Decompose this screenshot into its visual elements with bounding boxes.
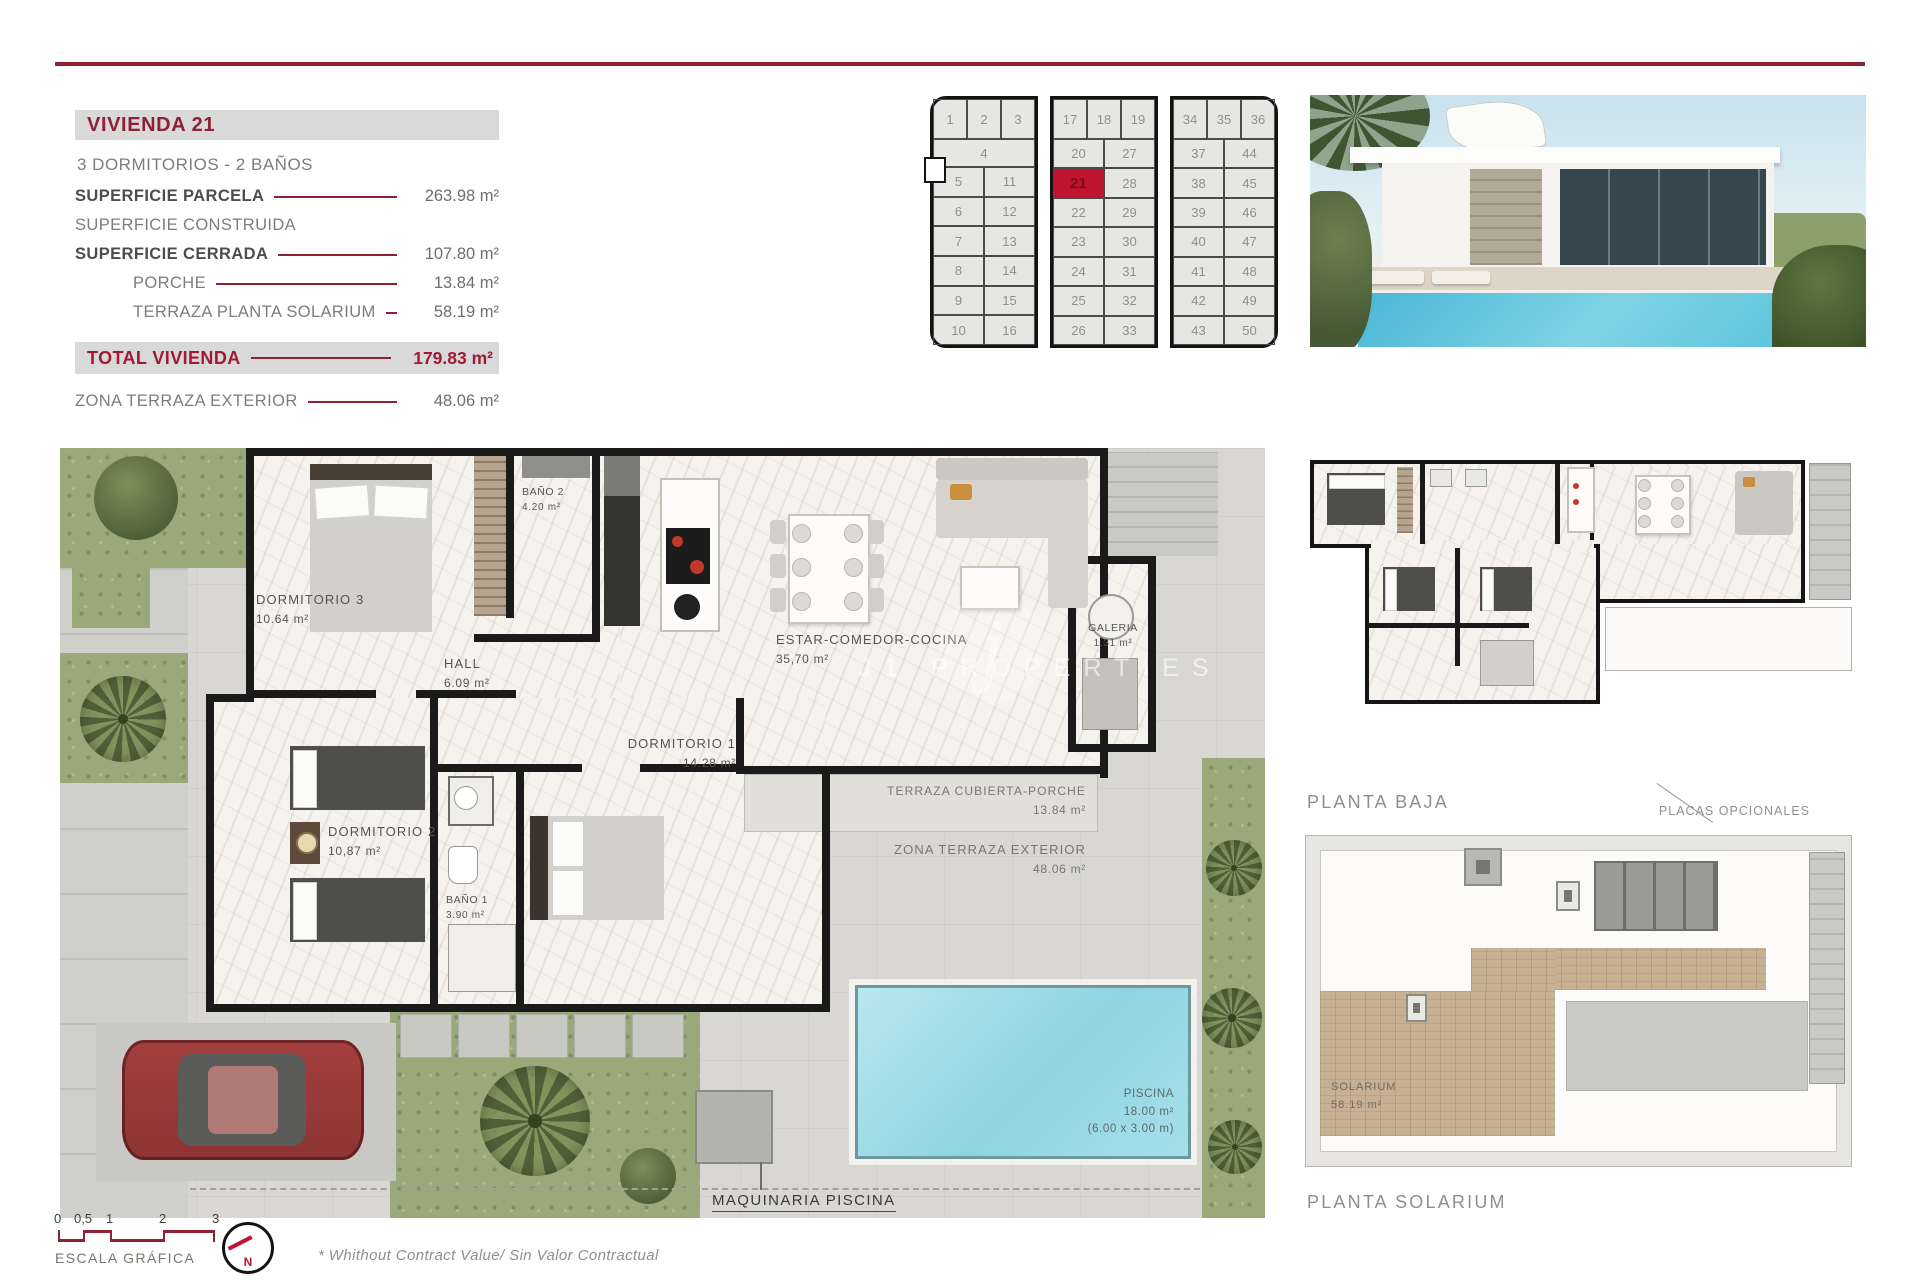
plot-cell-35: 35 xyxy=(1207,99,1241,139)
bush-icon xyxy=(1310,191,1372,347)
pillow xyxy=(1329,475,1385,489)
scale-tick: 0,5 xyxy=(74,1211,92,1226)
plate xyxy=(844,524,863,543)
plot-cell-45: 45 xyxy=(1224,168,1275,197)
plate xyxy=(844,592,863,611)
row-label: SUPERFICIE CERRADA xyxy=(75,245,268,264)
pillow xyxy=(1482,569,1494,611)
bed-icon xyxy=(1480,640,1534,686)
sun-lounger-icon xyxy=(1432,271,1490,284)
room-label-bano-2: BAÑO 2 4.20 m² xyxy=(522,484,564,516)
surface-row-construida: SUPERFICIE CONSTRUIDA xyxy=(75,212,499,239)
plot-row: 814 xyxy=(933,256,1035,286)
plot-row: 2431 xyxy=(1053,257,1155,286)
north-needle xyxy=(228,1235,253,1250)
plot-row: 4148 xyxy=(1173,257,1275,286)
plot-cell-15: 15 xyxy=(984,286,1035,316)
room-name: TERRAZA CUBIERTA-PORCHE xyxy=(887,784,1086,798)
mini-porch xyxy=(1605,607,1852,671)
room-area: 18.00 m² xyxy=(1124,1106,1174,1118)
wardrobe xyxy=(474,456,506,616)
plot-cell-41: 41 xyxy=(1173,257,1224,286)
room-area: 13.84 m² xyxy=(828,801,1086,820)
paver xyxy=(516,1014,568,1058)
maquinaria-label: MAQUINARIA PISCINA xyxy=(712,1192,896,1212)
chimney-icon xyxy=(1464,848,1502,886)
total-value: 179.83 m² xyxy=(401,348,493,369)
plate xyxy=(1638,515,1651,528)
wall xyxy=(246,448,1108,456)
chair xyxy=(868,588,884,612)
room-label-bano-1: BAÑO 1 3.90 m² xyxy=(446,892,488,924)
paver xyxy=(458,1014,510,1058)
plot-row: 343536 xyxy=(1173,99,1275,139)
boundary-dashed-line xyxy=(190,1188,1200,1190)
villa-pool xyxy=(1358,293,1794,347)
plot-cell-8: 8 xyxy=(933,256,984,286)
plot-cell-32: 32 xyxy=(1104,286,1155,315)
plot-cell-39: 39 xyxy=(1173,198,1224,227)
utility-box xyxy=(924,157,946,183)
wall xyxy=(506,448,514,618)
room-name: ZONA TERRAZA EXTERIOR xyxy=(894,842,1086,857)
north-arrow-icon: N xyxy=(222,1222,274,1274)
chair xyxy=(868,554,884,578)
surface-info-panel: VIVIENDA 21 3 DORMITORIOS - 2 BAÑOS SUPE… xyxy=(75,110,499,415)
planta-solarium-plan: SOLARIUM 58.19 m² xyxy=(1305,835,1852,1167)
plate xyxy=(1671,515,1684,528)
plot-cell-20: 20 xyxy=(1053,139,1104,168)
brochure-page: VIVIENDA 21 3 DORMITORIOS - 2 BAÑOS SUPE… xyxy=(0,0,1920,1280)
chimney-core xyxy=(1476,860,1491,875)
scale-segment xyxy=(163,1230,215,1242)
pool: PISCINA 18.00 m² (6.00 x 3.00 m) xyxy=(855,985,1191,1159)
mini-fixture xyxy=(1465,469,1487,487)
plot-row: 2229 xyxy=(1053,198,1155,227)
row-label: PORCHE xyxy=(75,274,206,293)
palm-icon xyxy=(1208,1120,1262,1174)
surface-row-zona-terraza: ZONA TERRAZA EXTERIOR 48.06 m² xyxy=(75,388,499,415)
sofa-back xyxy=(936,458,1088,480)
plot-cell-22: 22 xyxy=(1053,198,1104,227)
room-label-estar: ESTAR-COMEDOR-COCINA 35,70 m² xyxy=(776,630,967,669)
plot-row: 2128 xyxy=(1053,168,1155,197)
leader-line xyxy=(216,283,397,285)
plate xyxy=(792,592,811,611)
pillow xyxy=(293,750,317,808)
solarium-stairs xyxy=(1809,852,1845,1084)
plate xyxy=(1638,497,1651,510)
plot-cell-25: 25 xyxy=(1053,286,1104,315)
bed-headboard xyxy=(530,816,548,920)
solar-panels-icon xyxy=(1594,861,1718,931)
burner xyxy=(672,536,683,547)
mini-stairs xyxy=(1809,463,1851,600)
surface-row-terraza-solarium: TERRAZA PLANTA SOLARIUM 58.19 m² xyxy=(75,299,499,326)
entry-steps xyxy=(1108,452,1218,556)
sun-lounger-icon xyxy=(1366,271,1424,284)
plot-cell-21: 21 xyxy=(1053,168,1104,197)
vent-core xyxy=(1564,890,1573,901)
room-area: 35,70 m² xyxy=(776,650,967,669)
plot-cell-24: 24 xyxy=(1053,257,1104,286)
solarium-concrete-area xyxy=(1566,1001,1808,1091)
room-name: DORMITORIO 3 xyxy=(256,592,364,607)
room-label-dormitorio-2: DORMITORIO 2 10,87 m² xyxy=(328,822,436,861)
pool-label: PISCINA 18.00 m² (6.00 x 3.00 m) xyxy=(1088,1086,1174,1138)
plot-block-2: 1718192027212822292330243125322633 xyxy=(1050,96,1158,348)
plot-row: 2330 xyxy=(1053,227,1155,256)
plot-cell-36: 36 xyxy=(1241,99,1275,139)
plate xyxy=(1671,479,1684,492)
plot-cell-2: 2 xyxy=(967,99,1001,139)
scale-tick: 3 xyxy=(212,1211,219,1226)
plot-cell-4: 4 xyxy=(933,139,1035,167)
cushion xyxy=(1743,477,1755,487)
plot-cell-31: 31 xyxy=(1104,257,1155,286)
vent-icon xyxy=(1556,881,1580,911)
plot-block-3: 3435363744384539464047414842494350 xyxy=(1170,96,1278,348)
cushion xyxy=(950,484,972,500)
room-label-porche: TERRAZA CUBIERTA-PORCHE 13.84 m² xyxy=(828,782,1086,819)
row-label: SUPERFICIE PARCELA xyxy=(75,187,264,206)
room-area: 4.20 m² xyxy=(522,500,564,516)
room-area: 48.06 m² xyxy=(800,860,1086,879)
paver xyxy=(574,1014,626,1058)
plot-cell-14: 14 xyxy=(984,256,1035,286)
plot-row: 123 xyxy=(933,99,1035,139)
fridge xyxy=(604,456,640,496)
leader-line xyxy=(308,401,397,403)
planta-solarium-label: PLANTA SOLARIUM xyxy=(1307,1192,1507,1213)
plate xyxy=(792,558,811,577)
villa-photo xyxy=(1310,95,1866,347)
wall xyxy=(1420,464,1425,544)
surface-row-cerrada: SUPERFICIE CERRADA 107.80 m² xyxy=(75,241,499,268)
room-label-dormitorio-1: DORMITORIO 1 14.28 m² xyxy=(540,734,736,773)
room-area: 58.19 m² xyxy=(1331,1099,1382,1111)
plot-row: 171819 xyxy=(1053,99,1155,139)
sofa-chaise xyxy=(1048,480,1088,608)
room-area: 3.90 m² xyxy=(446,908,488,924)
leader-line xyxy=(274,196,397,198)
plot-row: 612 xyxy=(933,197,1035,227)
pillow xyxy=(1385,569,1397,611)
plot-cell-12: 12 xyxy=(984,197,1035,227)
leader-line xyxy=(386,312,397,314)
galeria-cabinet xyxy=(1082,658,1138,730)
chair xyxy=(770,554,786,578)
wall xyxy=(1455,548,1460,666)
row-label: ZONA TERRAZA EXTERIOR xyxy=(75,392,298,411)
plot-cell-43: 43 xyxy=(1173,316,1224,345)
plot-row: 4 xyxy=(933,139,1035,167)
scale-segment xyxy=(110,1230,163,1242)
solarium-room-label: SOLARIUM 58.19 m² xyxy=(1331,1079,1396,1114)
plot-location-grid: 1234511612713814915101617181920272128222… xyxy=(930,96,1278,348)
wall xyxy=(430,764,524,772)
room-name: HALL xyxy=(444,656,481,671)
room-area: 6.09 m² xyxy=(444,674,490,693)
pool-machinery-box xyxy=(695,1090,773,1164)
main-floor-plan: PISCINA 18.00 m² (6.00 x 3.00 m) MAQUINA… xyxy=(60,448,1265,1218)
plot-cell-26: 26 xyxy=(1053,316,1104,345)
mini-floor-patch xyxy=(1371,540,1594,552)
palm-icon xyxy=(1206,840,1262,896)
plot-cell-42: 42 xyxy=(1173,286,1224,315)
scale-label: ESCALA GRÁFICA xyxy=(55,1250,195,1266)
plot-cell-27: 27 xyxy=(1104,139,1155,168)
pillow xyxy=(552,870,584,916)
plot-cell-37: 37 xyxy=(1173,139,1224,168)
plot-cell-29: 29 xyxy=(1104,198,1155,227)
plate xyxy=(1638,479,1651,492)
burner xyxy=(690,560,704,574)
wall xyxy=(516,764,524,1012)
room-name: BAÑO 1 xyxy=(446,894,488,906)
car-roof xyxy=(208,1066,278,1134)
palm-icon xyxy=(80,676,166,762)
scale-tick: 2 xyxy=(159,1211,166,1226)
plot-cell-23: 23 xyxy=(1053,227,1104,256)
paver xyxy=(632,1014,684,1058)
room-name: DORMITORIO 2 xyxy=(328,824,436,839)
scale-tick: 1 xyxy=(106,1211,113,1226)
scale-segment xyxy=(58,1230,83,1242)
room-area: 1.31 m² xyxy=(1076,636,1150,652)
vent-icon xyxy=(1406,994,1427,1022)
palm-icon xyxy=(1202,988,1262,1048)
plot-cell-17: 17 xyxy=(1053,99,1087,139)
plot-row: 3946 xyxy=(1173,198,1275,227)
plot-cell-10: 10 xyxy=(933,315,984,345)
plot-cell-19: 19 xyxy=(1121,99,1155,139)
plot-cell-50: 50 xyxy=(1224,316,1275,345)
pillow xyxy=(314,484,370,520)
plate xyxy=(844,558,863,577)
plot-cell-34: 34 xyxy=(1173,99,1207,139)
mini-fixture xyxy=(1430,469,1452,487)
vent-core xyxy=(1413,1003,1420,1014)
row-label: TERRAZA PLANTA SOLARIUM xyxy=(75,303,376,322)
chair xyxy=(770,588,786,612)
wall xyxy=(246,448,254,702)
wardrobe xyxy=(1397,467,1413,533)
plot-cell-3: 3 xyxy=(1001,99,1035,139)
plot-row: 2027 xyxy=(1053,139,1155,168)
room-label-zona-terraza: ZONA TERRAZA EXTERIOR 48.06 m² xyxy=(800,840,1086,879)
plot-row: 4249 xyxy=(1173,286,1275,315)
plot-row: 1016 xyxy=(933,315,1035,345)
wall xyxy=(206,694,214,1012)
wall xyxy=(474,634,600,642)
toilet-icon xyxy=(448,846,478,884)
row-value: 263.98 m² xyxy=(407,187,499,206)
plot-row: 4047 xyxy=(1173,227,1275,256)
row-label: SUPERFICIE CONSTRUIDA xyxy=(75,216,296,235)
room-label-galeria: GALERIA 1.31 m² xyxy=(1076,620,1150,652)
bush-icon xyxy=(620,1148,676,1204)
plot-row: 713 xyxy=(933,226,1035,256)
chair xyxy=(868,520,884,544)
surface-row-parcela: SUPERFICIE PARCELA 263.98 m² xyxy=(75,183,499,210)
plot-cell-38: 38 xyxy=(1173,168,1224,197)
cooktop-icon xyxy=(666,528,710,584)
room-area: 10.64 m² xyxy=(256,610,364,629)
coffee-table xyxy=(960,566,1020,610)
plot-cell-47: 47 xyxy=(1224,227,1275,256)
bathroom-vanity xyxy=(522,456,590,478)
wall xyxy=(736,698,744,774)
planta-baja-mini-plan xyxy=(1305,455,1875,775)
plot-cell-18: 18 xyxy=(1087,99,1121,139)
surface-row-porche: PORCHE 13.84 m² xyxy=(75,270,499,297)
wall xyxy=(592,448,600,634)
plot-cell-7: 7 xyxy=(933,226,984,256)
plot-cell-30: 30 xyxy=(1104,227,1155,256)
scale-segment xyxy=(83,1230,110,1242)
plot-cell-44: 44 xyxy=(1224,139,1275,168)
room-label-dormitorio-3: DORMITORIO 3 10.64 m² xyxy=(256,590,364,629)
tree-icon xyxy=(94,456,178,540)
car-icon xyxy=(122,1040,364,1160)
top-divider-rule xyxy=(55,62,1865,66)
room-name: SOLARIUM xyxy=(1331,1081,1396,1093)
pot-icon xyxy=(674,594,700,620)
room-name: BAÑO 2 xyxy=(522,486,564,498)
plot-cell-28: 28 xyxy=(1104,168,1155,197)
paver xyxy=(400,1014,452,1058)
room-note: (6.00 x 3.00 m) xyxy=(1088,1123,1174,1135)
villa-stone-wall xyxy=(1470,169,1542,265)
planta-baja-label: PLANTA BAJA xyxy=(1307,792,1449,813)
room-name: PISCINA xyxy=(1124,1088,1174,1100)
room-name: ESTAR-COMEDOR-COCINA xyxy=(776,632,967,647)
plot-cell-1: 1 xyxy=(933,99,967,139)
burner xyxy=(1573,499,1579,505)
chair xyxy=(770,520,786,544)
plot-cell-13: 13 xyxy=(984,226,1035,256)
plot-cell-6: 6 xyxy=(933,197,984,227)
plot-cell-48: 48 xyxy=(1224,257,1275,286)
shower-tray xyxy=(448,924,516,992)
row-value: 13.84 m² xyxy=(407,274,499,293)
row-value: 107.80 m² xyxy=(407,245,499,264)
north-letter: N xyxy=(225,1255,271,1269)
plot-cell-33: 33 xyxy=(1104,316,1155,345)
plot-row: 4350 xyxy=(1173,316,1275,345)
solarium-deck xyxy=(1320,991,1555,1136)
placas-opcionales-label: PLACAS OPCIONALES xyxy=(1610,804,1810,818)
disclaimer-text: * Whithout Contract Value/ Sin Valor Con… xyxy=(318,1247,659,1264)
wall xyxy=(246,690,376,698)
plot-row: 2532 xyxy=(1053,286,1155,315)
row-value: 48.06 m² xyxy=(407,392,499,411)
burner xyxy=(1573,483,1579,489)
plot-cell-16: 16 xyxy=(984,315,1035,345)
pillow xyxy=(373,485,429,520)
total-label: TOTAL VIVIENDA xyxy=(87,348,241,369)
wall xyxy=(1369,623,1529,628)
page-title: VIVIENDA 21 xyxy=(75,110,499,140)
total-vivienda-bar: TOTAL VIVIENDA 179.83 m² xyxy=(75,342,499,374)
plate xyxy=(792,524,811,543)
plot-row: 2633 xyxy=(1053,316,1155,345)
plot-cell-11: 11 xyxy=(984,167,1035,197)
leader-line xyxy=(251,357,391,359)
scale-bar xyxy=(58,1230,215,1242)
room-label-hall: HALL 6.09 m² xyxy=(444,654,490,693)
plot-cell-46: 46 xyxy=(1224,198,1275,227)
room-area: 10,87 m² xyxy=(328,842,436,861)
villa-glass-wall xyxy=(1560,169,1766,265)
villa-roof xyxy=(1350,147,1780,163)
plot-cell-9: 9 xyxy=(933,286,984,316)
plot-row: 511 xyxy=(933,167,1035,197)
sink-icon xyxy=(454,786,478,810)
wall xyxy=(736,766,1108,774)
pillow xyxy=(552,821,584,867)
plot-cell-49: 49 xyxy=(1224,286,1275,315)
row-value: 58.19 m² xyxy=(407,303,499,322)
scale-tick: 0 xyxy=(54,1211,61,1226)
pillow xyxy=(293,882,317,940)
leader-line xyxy=(760,1162,762,1190)
palm-icon xyxy=(480,1066,590,1176)
garden-patch xyxy=(72,566,150,628)
plot-row: 915 xyxy=(933,286,1035,316)
room-area: 14.28 m² xyxy=(540,754,736,773)
wall xyxy=(1555,464,1560,544)
rooms-subtitle: 3 DORMITORIOS - 2 BAÑOS xyxy=(77,155,499,175)
plot-row: 3845 xyxy=(1173,168,1275,197)
lamp-icon xyxy=(296,832,318,854)
room-name: DORMITORIO 1 xyxy=(628,736,736,751)
kitchen-island xyxy=(1567,467,1595,533)
bed-headboard xyxy=(310,464,432,480)
plot-block-1: 12345116127138149151016 xyxy=(930,96,1038,348)
plot-cell-40: 40 xyxy=(1173,227,1224,256)
leader-line xyxy=(278,254,397,256)
plot-row: 3744 xyxy=(1173,139,1275,168)
room-name: GALERIA xyxy=(1088,622,1138,634)
plate xyxy=(1671,497,1684,510)
